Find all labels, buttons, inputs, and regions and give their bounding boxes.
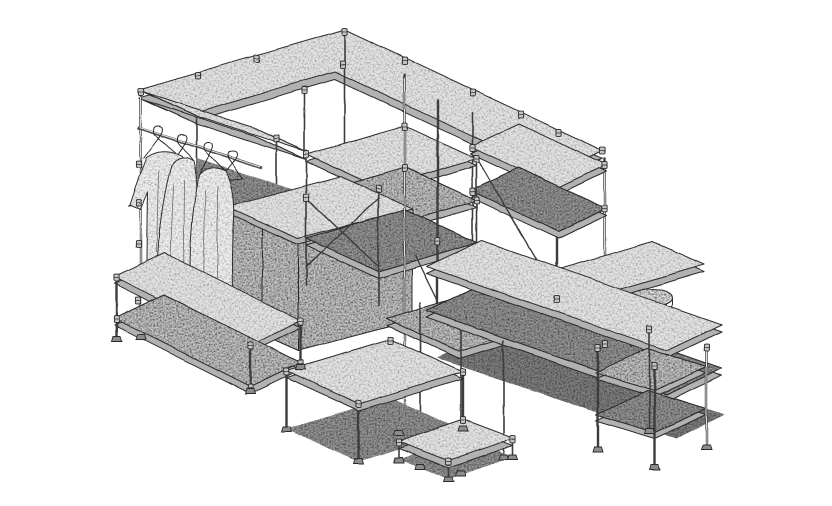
drawing [111, 28, 724, 481]
table-top [286, 339, 462, 403]
shelving-system-illustration: Isometric line illustration of a modular… [0, 0, 832, 506]
illustration-canvas: Isometric line illustration of a modular… [0, 0, 832, 506]
